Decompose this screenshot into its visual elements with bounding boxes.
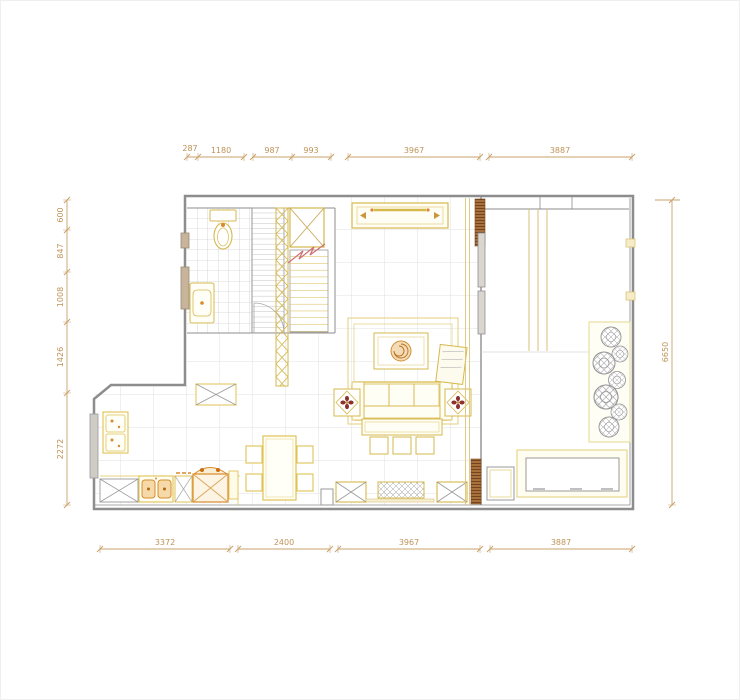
fridge-dot xyxy=(118,426,120,428)
bench-inner xyxy=(526,458,619,491)
dim-label: 1008 xyxy=(56,287,65,307)
sliding-door-panel-upper xyxy=(478,233,485,287)
toilet-tank xyxy=(210,210,236,221)
top-wall-mullions xyxy=(540,197,572,209)
tv-speaker-left xyxy=(370,208,373,211)
dim-label: 6650 xyxy=(661,342,670,362)
floor-plan-screenshot: 287 1180 987 993 3967 3887 3372 2400 396… xyxy=(0,0,740,700)
terrace xyxy=(481,209,635,500)
stair-lower-flight xyxy=(290,250,328,332)
threshold-strip xyxy=(366,499,434,502)
stool xyxy=(416,437,434,454)
fridge-dot xyxy=(118,445,120,447)
armchair xyxy=(436,344,467,384)
plant-icon xyxy=(599,417,619,437)
window-left-upper-small xyxy=(181,233,189,248)
dining-chair xyxy=(246,446,262,463)
sliding-door-panel-lower xyxy=(478,291,485,334)
console-table xyxy=(362,419,442,435)
sink-drain xyxy=(147,488,150,491)
wall-vent-lower xyxy=(626,292,635,300)
dining-chair xyxy=(297,474,313,491)
side-table-right xyxy=(445,389,471,416)
dim-label: 2400 xyxy=(274,538,294,547)
armchair-body xyxy=(436,344,467,384)
wall-pier xyxy=(321,489,333,505)
dim-label: 287 xyxy=(182,144,197,153)
floor-plan-canvas: 287 1180 987 993 3967 3887 3372 2400 396… xyxy=(0,0,740,700)
stove-knob xyxy=(200,468,204,472)
dim-label: 3967 xyxy=(399,538,419,547)
dim-label: 600 xyxy=(56,207,65,222)
stool xyxy=(393,437,411,454)
dim-label: 3887 xyxy=(551,538,571,547)
window-kitchen-left xyxy=(90,414,98,478)
sink-faucet xyxy=(155,478,157,480)
dim-label: 847 xyxy=(56,243,65,258)
refrigerator xyxy=(103,412,128,453)
stair-railing xyxy=(276,208,288,386)
dim-label: 1180 xyxy=(211,146,231,155)
decorative-screen xyxy=(378,482,424,498)
dim-label: 993 xyxy=(303,146,318,155)
tv-speaker-right xyxy=(426,208,429,211)
plant-icon xyxy=(601,327,621,347)
dim-label: 987 xyxy=(264,146,279,155)
wall-section-hatch-bottom xyxy=(471,459,481,504)
partition-track-lines xyxy=(529,209,547,351)
dim-label: 3887 xyxy=(550,146,570,155)
wall-vent-upper xyxy=(626,239,635,247)
sofa xyxy=(352,382,452,420)
sink-drain xyxy=(200,301,204,305)
dining-table xyxy=(263,436,296,500)
sink-drain xyxy=(163,488,166,491)
end-cabinet xyxy=(229,471,238,499)
dim-label: 2272 xyxy=(56,439,65,459)
dim-label: 1426 xyxy=(56,347,65,367)
side-table-left xyxy=(334,389,360,416)
plant-icon xyxy=(593,352,615,374)
dim-label: 3372 xyxy=(155,538,175,547)
toilet-flush-button xyxy=(221,223,225,227)
fridge-dot xyxy=(111,420,114,423)
stool xyxy=(370,437,388,454)
window-left-upper-large xyxy=(181,267,189,309)
stove-knob xyxy=(216,468,220,472)
fridge-dot xyxy=(111,439,114,442)
dining-chair xyxy=(297,446,313,463)
dining-chair xyxy=(246,474,262,491)
dim-label: 3967 xyxy=(404,146,424,155)
terrace-side-table xyxy=(487,467,514,500)
